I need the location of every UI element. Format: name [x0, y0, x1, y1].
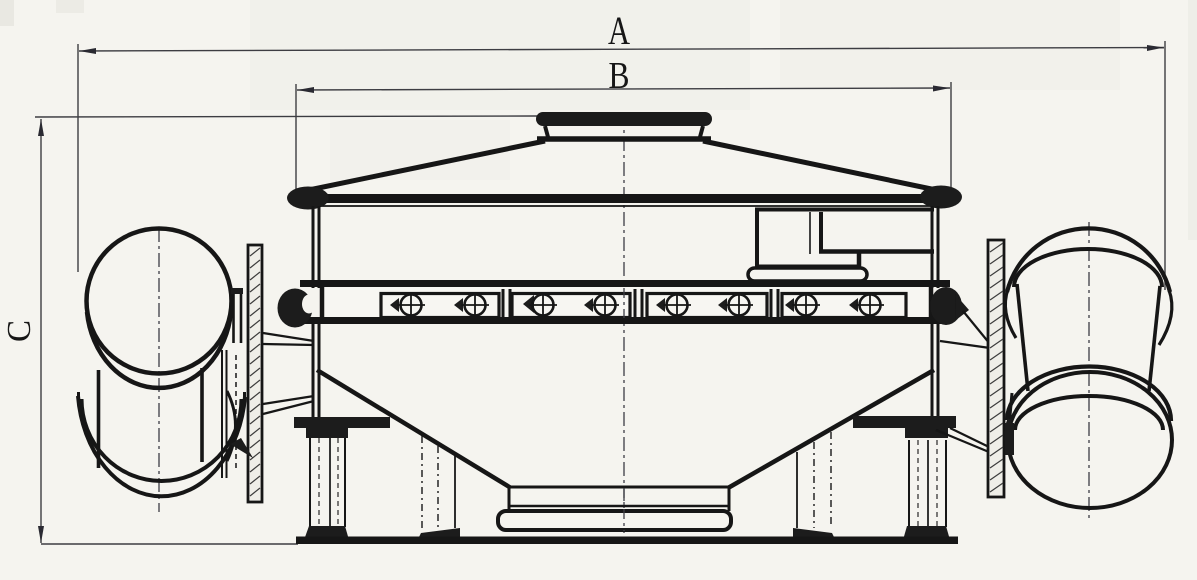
svg-text:C: C	[1, 320, 38, 342]
svg-text:B: B	[609, 55, 630, 97]
svg-text:A: A	[608, 8, 630, 53]
